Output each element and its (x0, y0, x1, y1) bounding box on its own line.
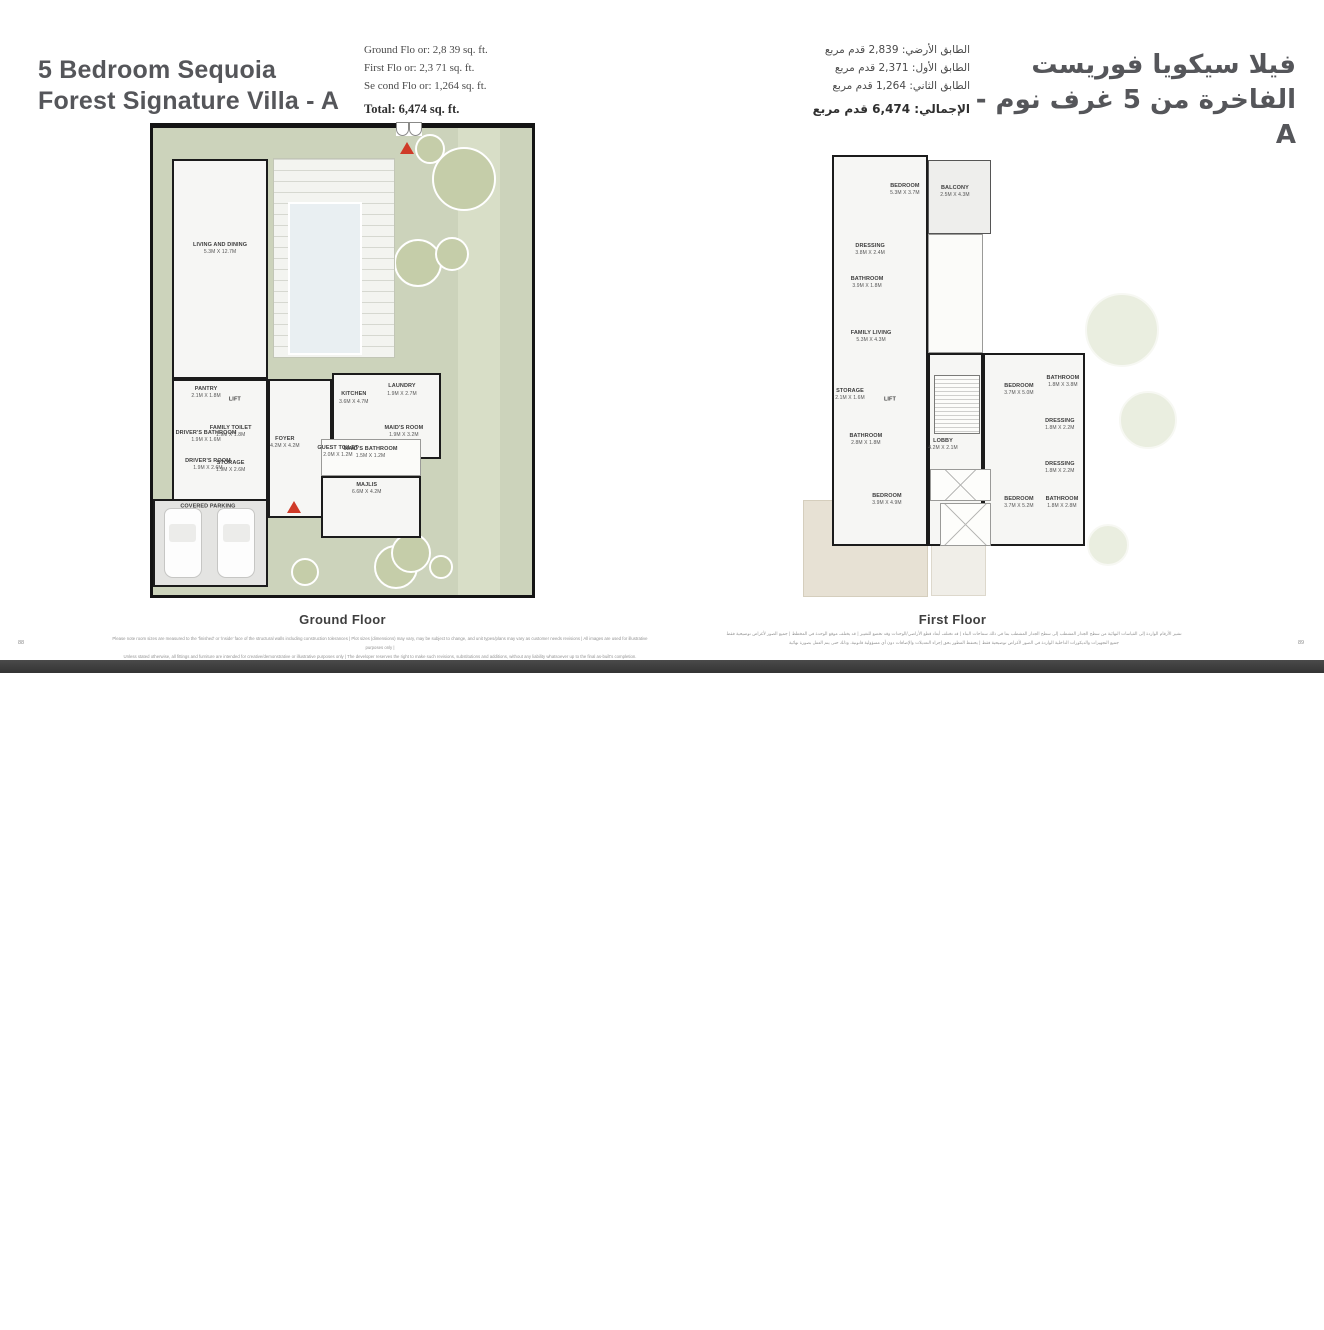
room-dims: 1.9M X 3.2M (385, 432, 424, 439)
room-name: STORAGE (836, 388, 864, 394)
title-ar-line2: الفاخرة من 5 غرف نوم - A (976, 85, 1296, 150)
room-name: MAID'S BATHROOM (344, 446, 398, 452)
room-label: BEDROOM 3.7M X 5.0M (1004, 383, 1033, 397)
page-number: 88 (18, 640, 24, 646)
room-name: LIVING AND DINING (193, 242, 247, 248)
stat-first-floor-ar: الطابق الأول: 2,371 قدم مربع (820, 62, 970, 74)
ground-floor-room-labels: LIVING AND DINING 5.3M X 12.7M PANTRY 2.… (153, 128, 532, 595)
room-label: BEDROOM 5.3M X 3.7M (890, 183, 919, 197)
stat-total: Total: 6,474 sq. ft. (364, 102, 494, 117)
room-dims: 3.7M X 5.2M (1004, 503, 1033, 510)
room-dims: 4.2M X 2.1M (928, 446, 957, 453)
room-name: PANTRY (195, 386, 218, 392)
room-name: BALCONY (941, 185, 969, 191)
room-label: BATHROOM 1.8M X 3.8M (1047, 375, 1080, 389)
page-title-en: 5 Bedroom Sequoia Forest Signature Villa… (38, 55, 339, 117)
room-name: LOBBY (933, 438, 953, 444)
room-name: LIFT (884, 397, 896, 403)
room-label: BEDROOM 3.9M X 4.9M (872, 493, 901, 507)
room-dims: 5.3M X 3.7M (890, 190, 919, 197)
title-ar-line1: فيلا سيكويا فوريست (1031, 50, 1296, 80)
room-label: DRESSING 3.8M X 2.4M (855, 243, 885, 257)
title-line2: Forest Signature Villa - A (38, 87, 339, 115)
room-name: LAUNDRY (388, 384, 415, 390)
room-label: DRESSING 1.8M X 2.2M (1045, 461, 1075, 475)
room-dims: 2.1M X 1.6M (835, 395, 864, 402)
room-dims: 2.5M X 4.3M (940, 192, 969, 199)
page-title-ar: فيلا سيكويا فوريست الفاخرة من 5 غرف نوم … (966, 48, 1296, 153)
disclaimer-en: Please note room sizes are measured to t… (110, 634, 650, 661)
room-dims: 3.9M X 1.8M (851, 284, 884, 291)
room-label: MAJLIS 6.6M X 4.2M (352, 482, 381, 496)
page-ground-first-floor: 5 Bedroom Sequoia Forest Signature Villa… (0, 0, 1324, 660)
stat-first-floor: First Flo or: 2,3 71 sq. ft. (364, 62, 494, 74)
disclaimer-line: تشير الأرقام الواردة إلى القياسات النهائ… (726, 632, 1181, 637)
room-label: LIVING AND DINING 5.3M X 12.7M (193, 242, 247, 256)
room-label: STORAGE 2.1M X 1.6M (835, 388, 864, 402)
page-number: 89 (1298, 640, 1304, 646)
room-label: LIFT (884, 397, 896, 404)
room-name: MAID'S ROOM (385, 425, 424, 431)
disclaimer-ar: تشير الأرقام الواردة إلى القياسات النهائ… (676, 630, 1232, 648)
room-label: BATHROOM 1.8M X 2.8M (1046, 496, 1079, 510)
room-dims: 1.8M X 2.8M (1046, 503, 1079, 510)
room-dims: 3.8M X 2.4M (855, 250, 885, 257)
room-label: MAID'S BATHROOM 1.5M X 1.2M (344, 446, 398, 460)
room-label: BATHROOM 2.8M X 1.8M (849, 433, 882, 447)
ground-floor-plan: LIVING AND DINING 5.3M X 12.7M PANTRY 2.… (150, 123, 535, 598)
room-label: LOBBY 4.2M X 2.1M (928, 438, 957, 452)
room-label: LIFT (229, 397, 241, 404)
room-name: BATHROOM (1047, 375, 1080, 381)
title-line1: 5 Bedroom Sequoia (38, 56, 276, 84)
room-label: LAUNDRY 1.9M X 2.7M (387, 384, 416, 398)
room-name: BATHROOM (849, 433, 882, 439)
room-dims: 1.8M X 2.2M (1045, 468, 1075, 475)
room-label: BATHROOM 3.9M X 1.8M (851, 276, 884, 290)
room-label: FAMILY LIVING 5.3M X 4.3M (851, 330, 892, 344)
room-label: COVERED PARKING (180, 503, 235, 510)
tree-icon (1119, 391, 1177, 449)
room-label: BALCONY 2.5M X 4.3M (940, 185, 969, 199)
room-name: KITCHEN (341, 392, 366, 398)
room-dims: 1.8M X 2.2M (1045, 425, 1075, 432)
stat-ground-floor: Ground Flo or: 2,8 39 sq. ft. (364, 44, 494, 56)
room-dims: 1.5M X 1.2M (344, 453, 398, 460)
room-name: BEDROOM (1004, 496, 1033, 502)
room-label: KITCHEN 3.6M X 4.7M (339, 392, 368, 406)
room-dims: 1.9M X 2.6M (216, 467, 245, 474)
room-label: STORAGE 1.9M X 2.6M (216, 460, 245, 474)
room-label: MAID'S ROOM 1.9M X 3.2M (385, 425, 424, 439)
room-dims: 2.8M X 1.8M (849, 440, 882, 447)
room-label: PANTRY 2.1M X 1.8M (191, 386, 220, 400)
first-floor-plan: BEDROOM 5.3M X 3.7M BALCONY 2.5M X 4.3M … (800, 150, 1105, 600)
room-name: DRESSING (1045, 461, 1075, 467)
room-name: BATHROOM (1046, 496, 1079, 502)
room-dims: 3.7M X 5.0M (1004, 390, 1033, 397)
room-name: BEDROOM (1004, 383, 1033, 389)
disclaimer-line: Please note room sizes are measured to t… (112, 636, 647, 650)
room-dims: 1.9M X 1.6M (176, 437, 237, 444)
room-name: MAJLIS (356, 482, 377, 488)
room-name: COVERED PARKING (180, 503, 235, 509)
room-dims: 3.9M X 4.9M (872, 500, 901, 507)
stat-second-floor-ar: الطابق الثاني: 1,264 قدم مربع (820, 80, 970, 92)
room-label: DRIVER'S BATHROOM 1.9M X 1.6M (176, 430, 237, 444)
room-name: DRESSING (855, 243, 885, 249)
room-label: FOYER 4.2M X 4.2M (270, 436, 299, 450)
room-name: FAMILY LIVING (851, 330, 892, 336)
page-second-floor: 5 Bedroom Sequoia Forest Signature Villa… (0, 673, 1324, 1330)
area-stats-en: Ground Flo or: 2,8 39 sq. ft. First Flo … (364, 44, 494, 123)
room-dims: 6.6M X 4.2M (352, 489, 381, 496)
room-name: BEDROOM (872, 493, 901, 499)
first-floor-room-labels: BEDROOM 5.3M X 3.7M BALCONY 2.5M X 4.3M … (800, 150, 1105, 600)
room-name: DRIVER'S BATHROOM (176, 430, 237, 436)
room-dims: 5.3M X 4.3M (851, 338, 892, 345)
disclaimer-line: Unless stated otherwise, all fittings an… (124, 654, 637, 659)
page-divider (0, 660, 1324, 673)
room-dims: 1.8M X 3.8M (1047, 383, 1080, 390)
room-name: LIFT (229, 397, 241, 403)
stat-ground-floor-ar: الطابق الأرضي: 2,839 قدم مربع (820, 44, 970, 56)
first-floor-caption: First Floor (800, 612, 1105, 627)
stat-total-ar: الإجمالي: 6,474 قدم مربع (820, 102, 970, 116)
room-dims: 1.9M X 2.7M (387, 391, 416, 398)
room-dims: 4.2M X 4.2M (270, 443, 299, 450)
brochure-sheet: 5 Bedroom Sequoia Forest Signature Villa… (0, 0, 1324, 1330)
area-stats-ar: الطابق الأرضي: 2,839 قدم مربع الطابق الأ… (820, 44, 970, 122)
room-label: DRESSING 1.8M X 2.2M (1045, 418, 1075, 432)
room-name: DRESSING (1045, 418, 1075, 424)
room-name: BEDROOM (890, 183, 919, 189)
room-dims: 2.1M X 1.8M (191, 394, 220, 401)
room-name: BATHROOM (851, 276, 884, 282)
ground-floor-caption: Ground Floor (150, 612, 535, 627)
room-name: STORAGE (217, 460, 245, 466)
room-dims: 5.3M X 12.7M (193, 249, 247, 256)
room-label: BEDROOM 3.7M X 5.2M (1004, 496, 1033, 510)
room-dims: 3.6M X 4.7M (339, 399, 368, 406)
stat-second-floor: Se cond Flo or: 1,264 sq. ft. (364, 80, 494, 92)
disclaimer-line: جميع التجهيزات والديكورات الداخلية الوار… (789, 641, 1119, 646)
room-name: FOYER (275, 436, 294, 442)
